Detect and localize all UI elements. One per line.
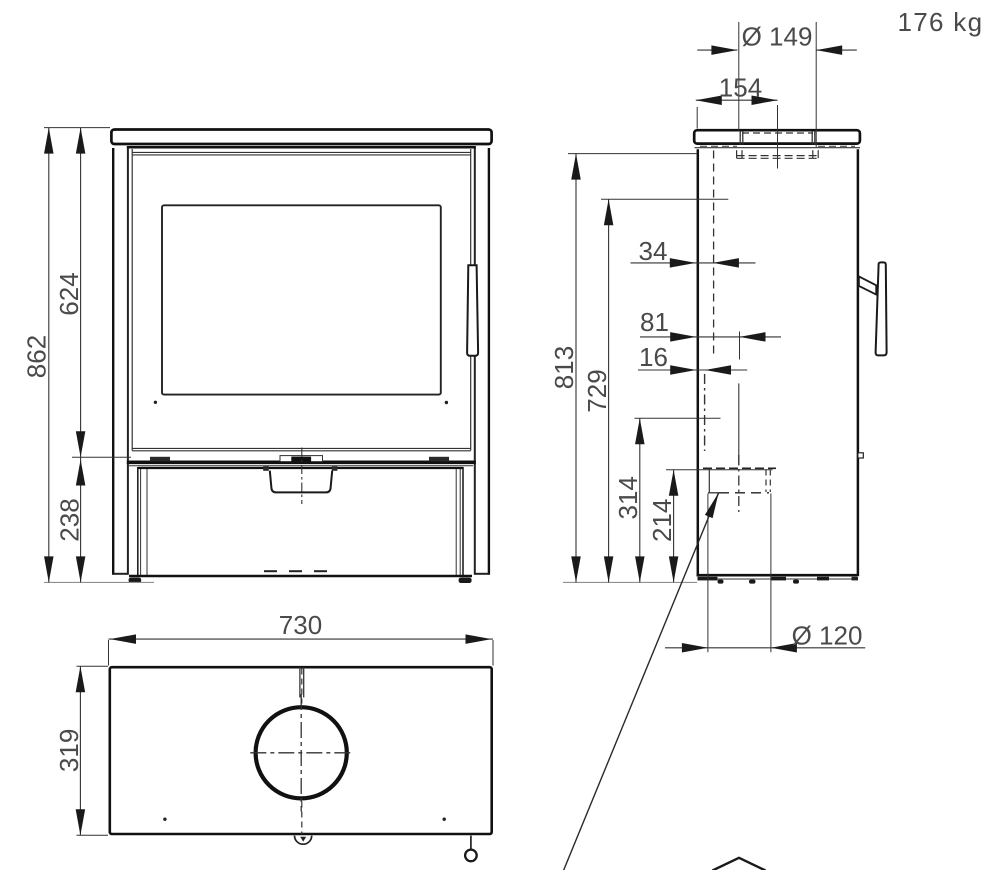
svg-text:154: 154 [719, 73, 762, 103]
svg-text:813: 813 [549, 346, 579, 389]
svg-text:238: 238 [54, 498, 84, 541]
svg-text:319: 319 [54, 729, 84, 772]
svg-text:862: 862 [22, 335, 52, 378]
svg-text:730: 730 [279, 610, 322, 640]
svg-text:16: 16 [639, 342, 668, 372]
svg-text:81: 81 [640, 307, 669, 337]
svg-text:Ø 120: Ø 120 [792, 621, 863, 651]
svg-text:314: 314 [613, 476, 643, 519]
svg-text:214: 214 [647, 499, 677, 542]
svg-text:Ø 149: Ø 149 [742, 22, 813, 52]
svg-text:624: 624 [54, 272, 84, 315]
svg-text:729: 729 [582, 369, 612, 412]
svg-text:34: 34 [639, 236, 668, 266]
svg-text:176 kg: 176 kg [898, 7, 984, 37]
